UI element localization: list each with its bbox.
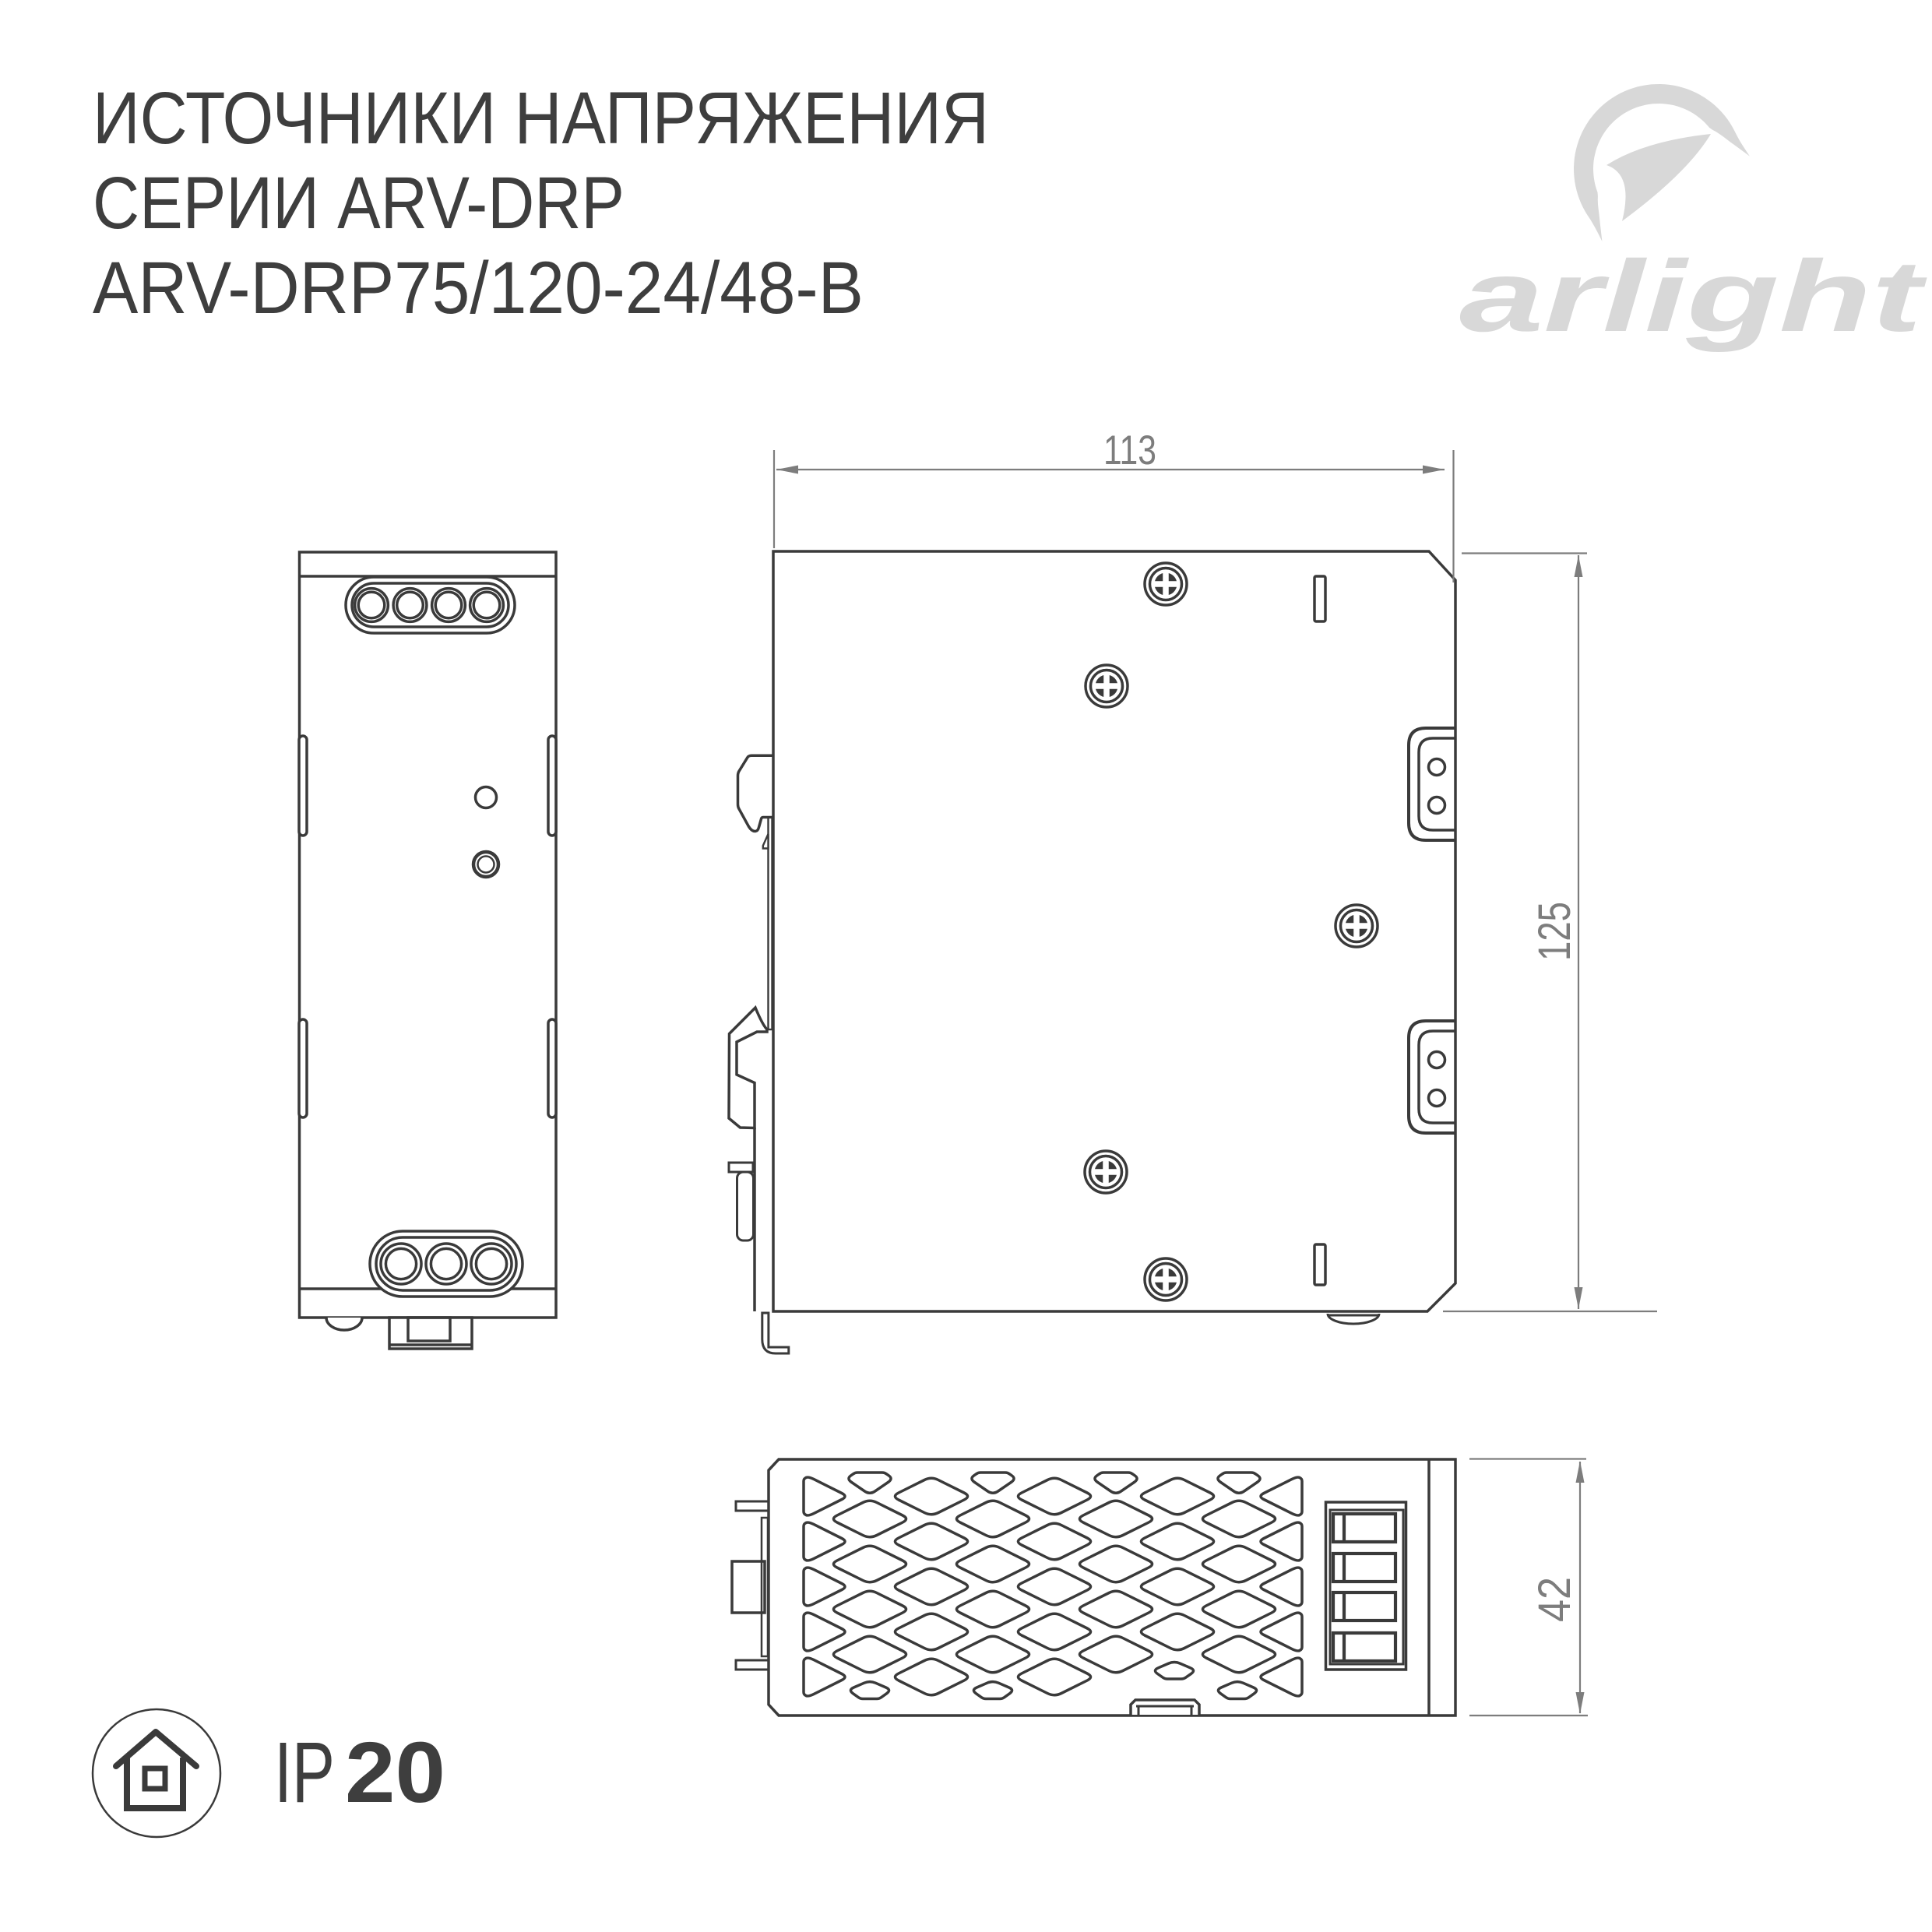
svg-text:ИСТОЧНИКИ НАПРЯЖЕНИЯ: ИСТОЧНИКИ НАПРЯЖЕНИЯ	[93, 77, 989, 160]
svg-text:125: 125	[1529, 902, 1580, 961]
svg-text:IP: IP	[274, 1725, 335, 1821]
svg-text:113: 113	[1103, 428, 1156, 473]
svg-text:ARV-DRP75/120-24/48-B: ARV-DRP75/120-24/48-B	[93, 247, 864, 329]
svg-text:20: 20	[345, 1725, 445, 1821]
svg-text:42: 42	[1529, 1577, 1580, 1622]
svg-text:arlight: arlight	[1459, 239, 1927, 353]
svg-text:СЕРИИ ARV-DRP: СЕРИИ ARV-DRP	[93, 162, 625, 245]
